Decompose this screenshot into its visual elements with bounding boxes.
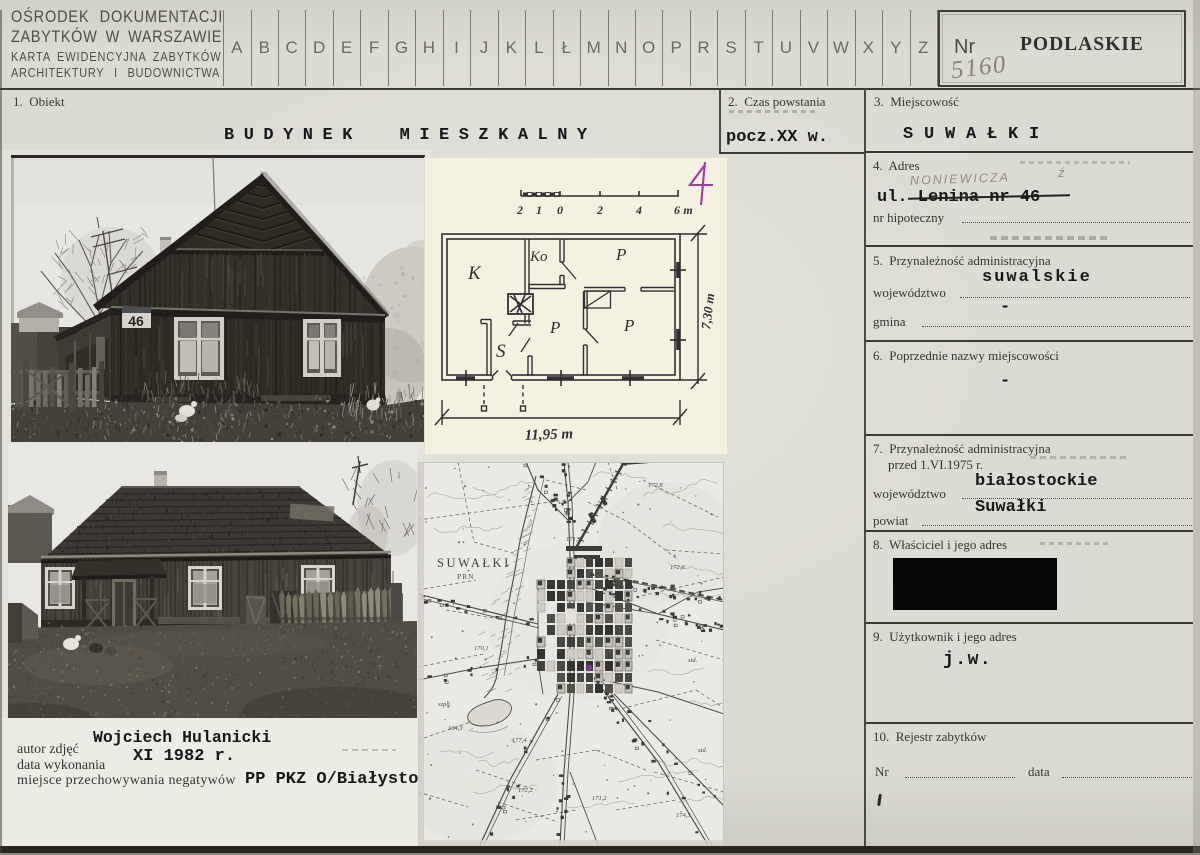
svg-text:P: P	[549, 318, 560, 337]
svg-text:6: 6	[674, 203, 680, 217]
svg-text:K: K	[467, 263, 482, 284]
svg-text:4: 4	[635, 203, 642, 217]
svg-text:2: 2	[596, 203, 603, 217]
svg-text:2: 2	[516, 203, 523, 217]
svg-text:P: P	[623, 316, 634, 335]
svg-text:m: m	[683, 203, 692, 217]
svg-text:P: P	[615, 245, 626, 264]
svg-text:1: 1	[536, 203, 542, 217]
svg-text:11,95 m: 11,95 m	[524, 426, 573, 444]
svg-text:S: S	[496, 341, 506, 362]
svg-text:0: 0	[557, 203, 563, 217]
svg-text:Ko: Ko	[529, 249, 548, 265]
